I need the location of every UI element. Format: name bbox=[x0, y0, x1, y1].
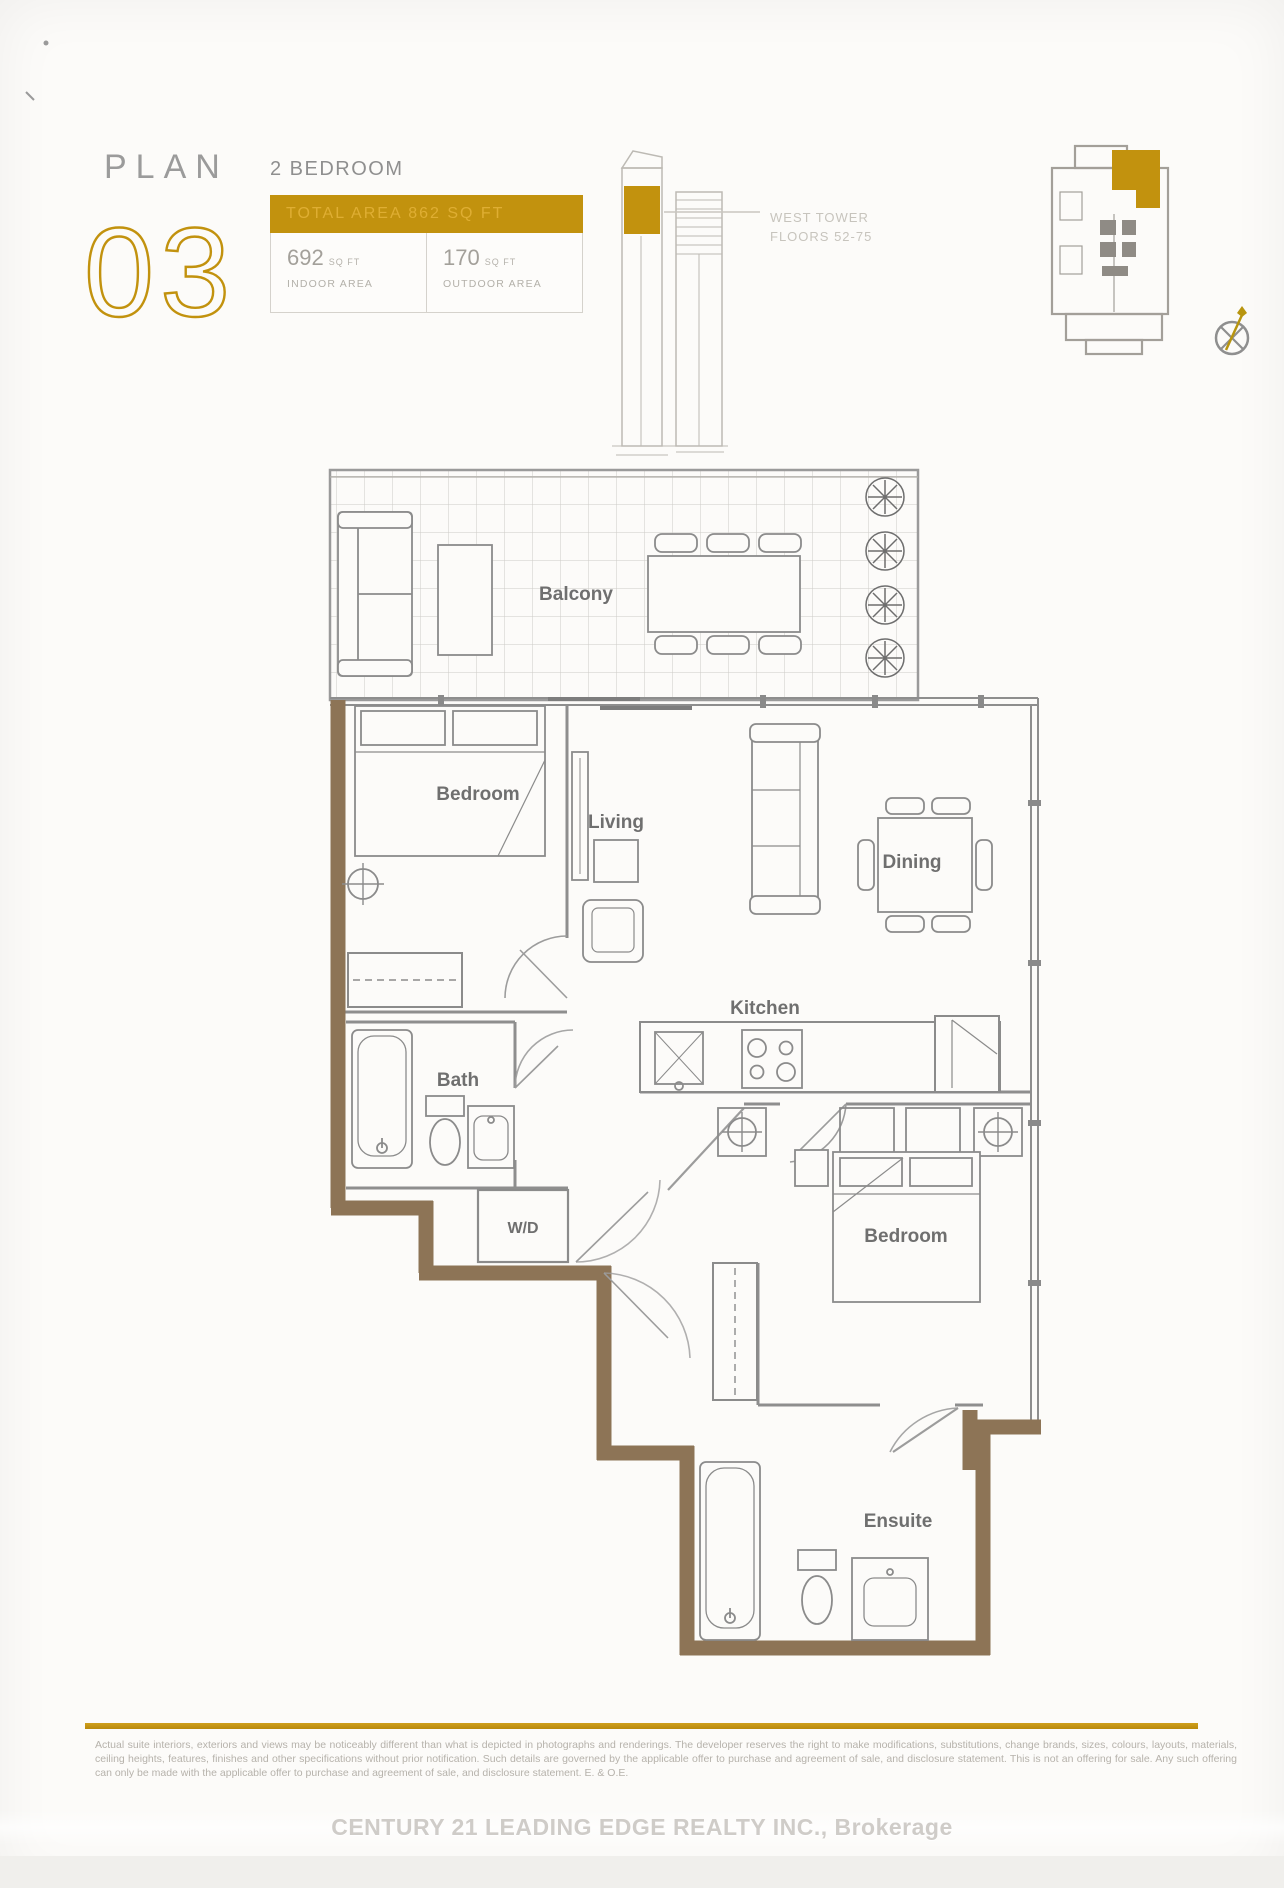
living-label: Living bbox=[588, 812, 644, 833]
total-area-banner: TOTAL AREA 862 SQ FT bbox=[270, 195, 583, 233]
ensuite-fixtures bbox=[700, 1462, 928, 1640]
bedroom2-furniture bbox=[795, 1150, 980, 1302]
scan-edge-shadow bbox=[0, 1856, 1284, 1888]
exterior-walls bbox=[331, 700, 1041, 1655]
disclaimer-text: Actual suite interiors, exteriors and vi… bbox=[95, 1739, 1237, 1780]
dining-label: Dining bbox=[882, 852, 941, 873]
outdoor-area-cell: 170SQ FT OUTDOOR AREA bbox=[426, 233, 582, 312]
indoor-area-value: 692 bbox=[287, 245, 324, 270]
tower-callout: WEST TOWER FLOORS 52-75 bbox=[770, 208, 872, 246]
bath-label: Bath bbox=[437, 1070, 479, 1091]
outdoor-area-unit: SQ FT bbox=[485, 257, 517, 267]
indoor-area-unit: SQ FT bbox=[329, 257, 361, 267]
bath-fixtures bbox=[352, 1030, 514, 1168]
kitchen-label: Kitchen bbox=[730, 998, 800, 1019]
hall-closet bbox=[713, 1263, 757, 1400]
floor-plan-sheet: PLAN 2 BEDROOM TOTAL AREA 862 SQ FT 692S… bbox=[0, 0, 1284, 1888]
unit-type: 2 BEDROOM bbox=[270, 158, 404, 181]
outdoor-area-value: 170 bbox=[443, 245, 480, 270]
balcony-label: Balcony bbox=[539, 584, 613, 605]
key-plan-unit-highlight bbox=[1112, 150, 1160, 208]
tower-floors: FLOORS 52-75 bbox=[770, 227, 872, 246]
kitchen-fixtures bbox=[640, 1016, 1022, 1172]
bedroom2-label: Bedroom bbox=[864, 1226, 947, 1247]
outdoor-sofa bbox=[338, 512, 412, 676]
window-walls bbox=[330, 695, 1041, 1427]
outdoor-area-label: OUTDOOR AREA bbox=[443, 278, 582, 290]
washer-dryer-closet bbox=[478, 1190, 568, 1262]
area-cells: 692SQ FT INDOOR AREA 170SQ FT OUTDOOR AR… bbox=[270, 233, 583, 313]
tower-icon bbox=[612, 151, 760, 455]
plan-drawing: 03 bbox=[0, 0, 1284, 1888]
tower-highlight-band bbox=[624, 186, 660, 234]
window-mullions bbox=[438, 695, 1041, 1286]
balcony-area bbox=[330, 470, 918, 700]
plan-label: PLAN bbox=[104, 148, 229, 187]
outdoor-dining-set bbox=[648, 534, 801, 654]
living-furniture bbox=[572, 724, 820, 962]
key-plan bbox=[1052, 146, 1168, 354]
brokerage-watermark: CENTURY 21 LEADING EDGE REALTY INC., Bro… bbox=[0, 1810, 1284, 1845]
tower-name: WEST TOWER bbox=[770, 208, 872, 227]
footer-rule bbox=[85, 1723, 1198, 1729]
interior-walls bbox=[338, 706, 1031, 1405]
bedroom1-furniture bbox=[342, 706, 545, 1007]
indoor-area-cell: 692SQ FT INDOOR AREA bbox=[271, 233, 426, 312]
door-swings bbox=[505, 936, 958, 1452]
dining-furniture bbox=[858, 798, 992, 932]
compass-icon bbox=[1216, 306, 1248, 354]
planter-icons bbox=[866, 478, 904, 677]
outdoor-side-table bbox=[438, 545, 492, 655]
plan-number: 03 bbox=[84, 202, 236, 343]
bedroom1-label: Bedroom bbox=[436, 784, 519, 805]
indoor-area-label: INDOOR AREA bbox=[287, 278, 426, 290]
washer-dryer-label: W/D bbox=[507, 1220, 538, 1237]
scan-artifacts bbox=[26, 41, 49, 101]
ensuite-label: Ensuite bbox=[864, 1511, 933, 1532]
